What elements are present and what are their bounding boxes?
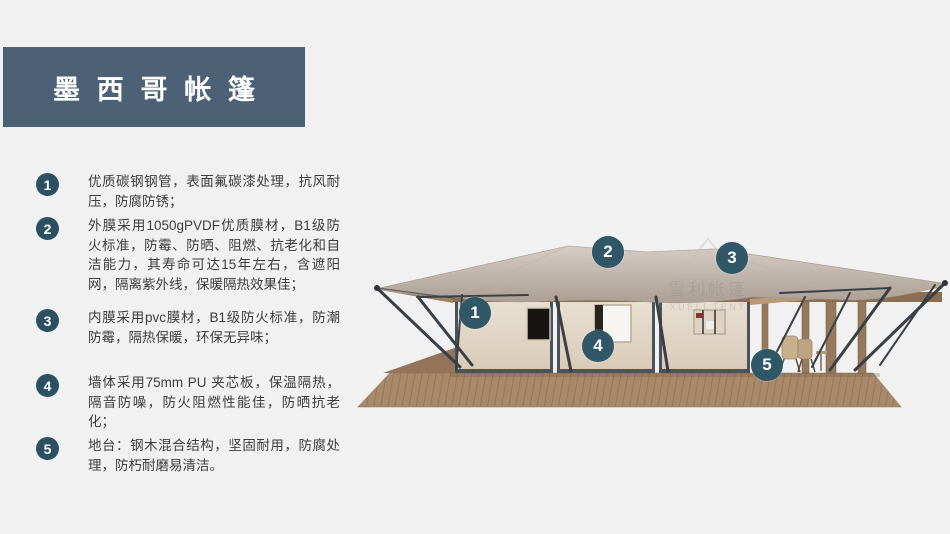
tent-illustration: 雪利帐篷 XUELI TENT 1 2 3 4 [350,215,950,465]
watermark-en: XUELI TENT [670,302,747,312]
feature-item-2: 2 外膜采用1050gPVDF优质膜材，B1级防火标准，防霉、防晒、阻燃、抗老化… [36,216,340,294]
callout-marker-2: 2 [592,236,624,268]
feature-number-badge-2: 2 [36,217,59,240]
feature-text-4: 墙体采用75mm PU 夹芯板，保温隔热，隔音防噪，防火阻燃性能佳，防晒抗老化； [88,373,340,432]
feature-number-badge-1: 1 [36,173,59,196]
deck-shadow-under-walls [450,373,880,377]
feature-item-3: 3 内膜采用pvc膜材，B1级防火标准，防潮防霉，隔热保暖，环保无异味； [36,308,340,347]
feature-text-1: 优质碳钢钢管，表面氟碳漆处理，抗风耐压，防腐防锈； [88,172,340,211]
watermark-cn: 雪利帐篷 [668,280,748,299]
feature-number-badge-5: 5 [36,437,59,460]
feature-text-2: 外膜采用1050gPVDF优质膜材，B1级防火标准，防霉、防晒、阻燃、抗老化和自… [88,216,340,294]
callout-marker-4: 4 [582,330,614,362]
feature-item-4: 4 墙体采用75mm PU 夹芯板，保温隔热，隔音防噪，防火阻燃性能佳，防晒抗老… [36,373,340,432]
callout-marker-5: 5 [751,349,783,381]
wood-deck [358,373,901,407]
feature-number-badge-3: 3 [36,309,59,332]
window-module-1 [527,308,550,340]
feature-text-3: 内膜采用pvc膜材，B1级防火标准，防潮防霉，隔热保暖，环保无异味； [88,308,340,347]
open-window-module-3 [694,310,725,334]
feature-text-5: 地台：钢木混合结构，坚固耐用，防腐处理，防朽耐磨易清洁。 [88,436,340,475]
feature-item-1: 1 优质碳钢钢管，表面氟碳漆处理，抗风耐压，防腐防锈； [36,172,340,211]
feature-list: 1 优质碳钢钢管，表面氟碳漆处理，抗风耐压，防腐防锈； 2 外膜采用1050gP… [36,0,346,534]
callout-marker-3: 3 [716,242,748,274]
callout-marker-1: 1 [459,297,491,329]
feature-number-badge-4: 4 [36,374,59,397]
tent-render: 雪利帐篷 XUELI TENT [350,215,950,465]
feature-item-5: 5 地台：钢木混合结构，坚固耐用，防腐处理，防朽耐磨易清洁。 [36,436,340,475]
